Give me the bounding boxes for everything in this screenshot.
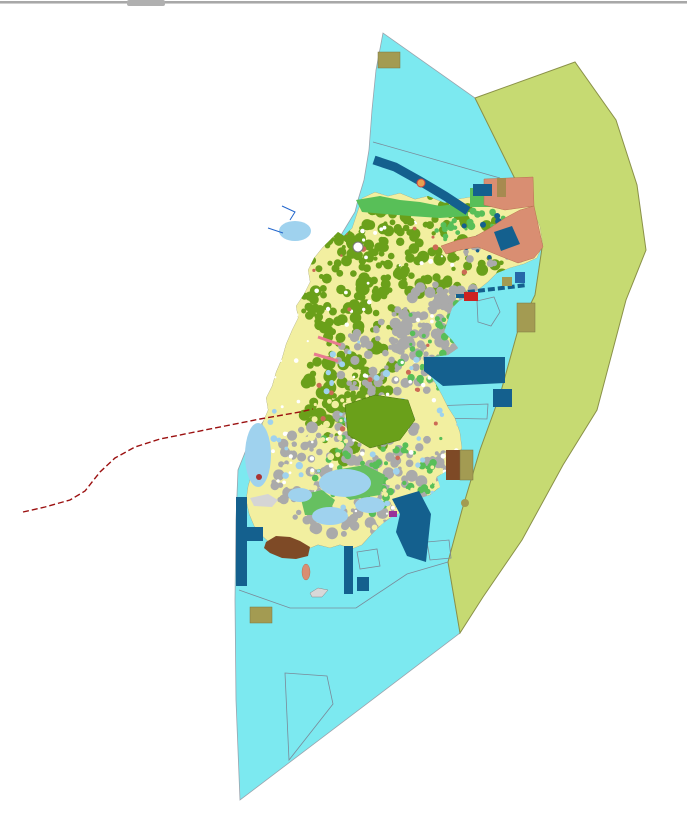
stream-line-1 bbox=[282, 206, 295, 220]
salmon-blob-south bbox=[302, 564, 310, 580]
pier-rect-north bbox=[473, 184, 492, 196]
shallow-water-south-4 bbox=[288, 488, 312, 502]
shallow-water-south-2 bbox=[312, 507, 348, 525]
circle-marker-nw bbox=[353, 242, 363, 252]
pier-square-south bbox=[357, 577, 369, 591]
window-top-border-dark bbox=[0, 1, 687, 3]
facility-khaki-east-small bbox=[502, 277, 512, 286]
map-page bbox=[0, 0, 687, 821]
marker-red-west bbox=[256, 474, 262, 480]
pier-arm-sw bbox=[247, 527, 263, 541]
facility-khaki-east-2 bbox=[460, 450, 473, 480]
map-canvas[interactable] bbox=[0, 0, 687, 821]
shallow-water-south-1 bbox=[319, 469, 371, 497]
marker-navy-harbor bbox=[456, 294, 464, 298]
facility-khaki-nw bbox=[378, 52, 400, 68]
shallow-water-south-3 bbox=[355, 497, 385, 513]
facility-tan-ne bbox=[497, 178, 506, 197]
pier-square-east bbox=[493, 389, 512, 407]
marker-magenta-south bbox=[389, 511, 397, 517]
pier-bright-square bbox=[515, 272, 525, 283]
shallow-water-nw bbox=[279, 221, 311, 241]
scroll-handle[interactable] bbox=[127, 0, 165, 6]
marker-red-harbor bbox=[464, 292, 478, 301]
facility-khaki-east bbox=[517, 303, 535, 332]
pier-bar-south bbox=[344, 546, 353, 594]
marker-orange-north bbox=[417, 179, 425, 187]
window-top-border-light bbox=[0, 3, 687, 4]
facility-brown-east bbox=[446, 450, 460, 480]
pier-bar-sw bbox=[236, 497, 247, 586]
facility-khaki-dot bbox=[461, 499, 469, 507]
facility-khaki-sw bbox=[250, 607, 272, 623]
